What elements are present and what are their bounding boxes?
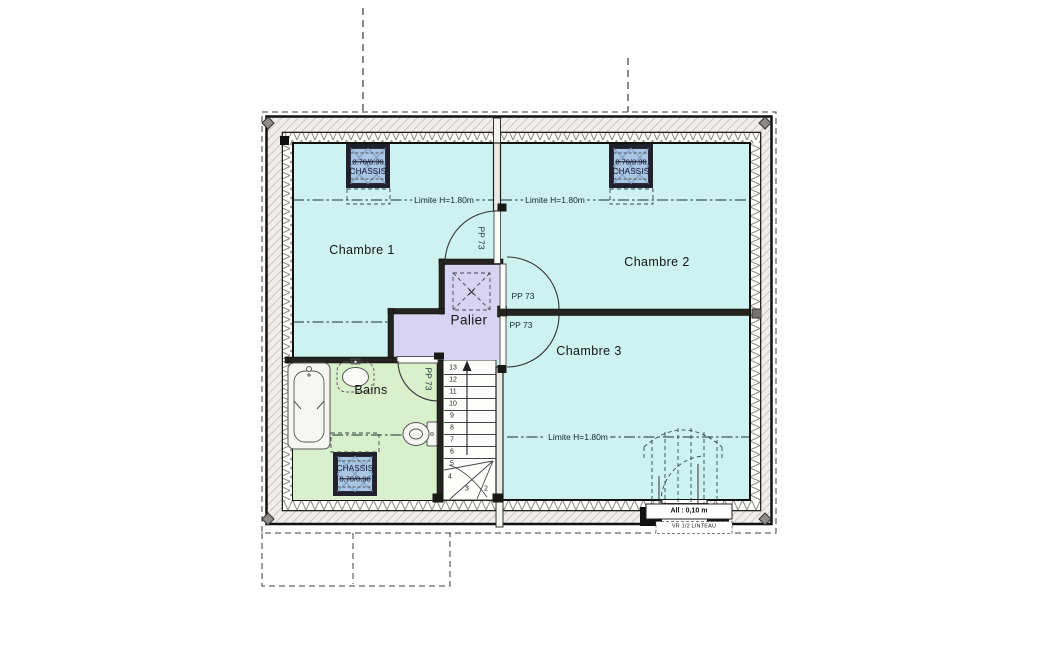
door-label-chambre1: PP 73 [477, 226, 486, 249]
door-label-chambre3: PP 73 [509, 321, 532, 330]
toilet [403, 422, 437, 446]
stair-step-number: 13 [449, 365, 457, 372]
window-dim-label-2: 0.70/0.90 [615, 158, 646, 166]
room-label-palier: Palier [451, 313, 488, 327]
stair-step-number: 9 [450, 413, 454, 420]
height-limit-label-3: Limite H=1.80m [546, 433, 610, 442]
lintel-label: VR 1/2 LINTEAU [672, 524, 716, 530]
room-label-chambre1: Chambre 1 [329, 244, 394, 257]
stair-step-number: 6 [450, 449, 454, 456]
stair-step-number: 11 [449, 389, 456, 396]
bathtub [288, 363, 330, 449]
door-label-chambre2: PP 73 [511, 292, 534, 301]
allege-label: All : 0,10 m [671, 508, 708, 515]
room-label-chambre2: Chambre 2 [624, 256, 689, 269]
room-label-chambre3: Chambre 3 [556, 345, 621, 358]
stair-step-number: 3 [465, 486, 469, 493]
stair-step-number: 4 [448, 474, 452, 481]
stair-step-number: 7 [450, 437, 454, 444]
window-name-label-1: CHASSIS [350, 168, 387, 176]
stair-step-number: 12 [449, 377, 457, 384]
stair-step-number: 2 [484, 486, 488, 493]
door-label-bains: PP 73 [424, 367, 433, 390]
room-label-bains: Bains [354, 384, 387, 397]
height-limit-label-2: Limite H=1.80m [523, 196, 587, 205]
floor-plan-page: Chambre 1 Chambre 2 Chambre 3 Palier Bai… [0, 0, 1038, 655]
window-name-label-2: CHASSIS [613, 168, 650, 176]
window-dim-label-1: 0.70/0.90 [352, 158, 383, 166]
stair-step-number: 10 [449, 401, 457, 408]
stair-step-number: 8 [450, 425, 454, 432]
window-dim-label-3: 0.70/0.90 [339, 475, 370, 483]
stair-step-number: 5 [450, 461, 454, 468]
height-limit-label-1: Limite H=1.80m [412, 196, 476, 205]
window-name-label-3: CHASSIS [337, 465, 374, 473]
